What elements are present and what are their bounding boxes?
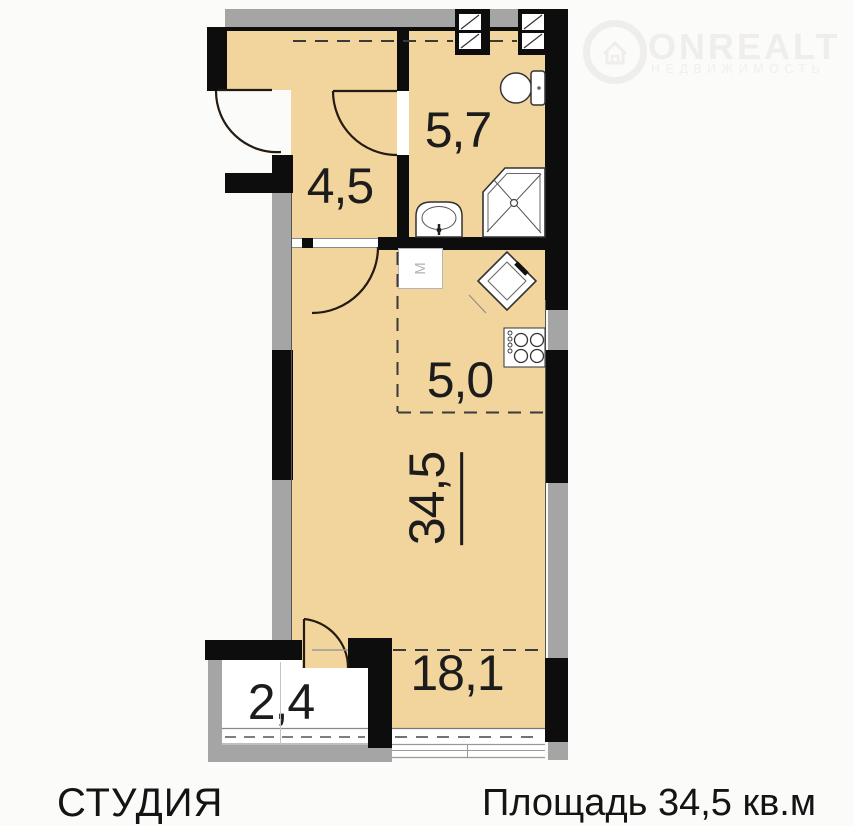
vent-grille-icon — [522, 33, 544, 49]
wall-left-segment — [272, 350, 293, 480]
vent-grille-icon — [459, 14, 481, 30]
bathroom-area-label: 5,7 — [408, 105, 508, 155]
wall-right-upper — [545, 9, 568, 310]
wall-entry-corner-h — [225, 173, 293, 193]
wall-doorway-stub — [302, 238, 313, 248]
vent-grille-icon — [459, 33, 481, 49]
wall-right-mid — [545, 350, 568, 483]
outer-wall-right-corner — [548, 742, 568, 760]
washing-machine-icon: M — [398, 248, 443, 289]
wall-balcony-pillar — [368, 666, 392, 748]
washing-machine-label: M — [412, 262, 429, 275]
wall-divider-upper — [397, 31, 409, 91]
outer-wall-right-a — [548, 310, 568, 350]
hallway-area-label: 4,5 — [290, 161, 390, 211]
entrance-door-swing-arc — [216, 90, 281, 152]
kitchen-area-label: 5,0 — [410, 355, 510, 405]
wall-top-line — [227, 27, 545, 31]
outer-wall-right-b — [548, 483, 568, 658]
main-window-band — [392, 728, 545, 758]
outer-wall-top — [225, 9, 568, 28]
wall-top-left — [207, 27, 227, 91]
balcony-wall-bottom — [208, 745, 370, 762]
vent-grille-icon — [522, 14, 544, 30]
wall-divider-lower — [397, 155, 409, 238]
wall-balcony-top — [205, 640, 302, 660]
wall-right-lower — [545, 658, 568, 742]
onrealt-logo: ONREALT НЕДВИЖИМОСТЬ — [575, 14, 845, 94]
logo-subtitle-text: НЕДВИЖИМОСТЬ — [651, 62, 825, 76]
hallway-floor — [227, 31, 397, 90]
studio-total-area-label: 34,5 — [398, 451, 463, 544]
house-logo-icon — [583, 20, 647, 84]
living-area-label: 18,1 — [402, 648, 512, 698]
wall-balcony-pillar-top — [348, 638, 392, 668]
studio-total-area-label-wrap: 34,5 — [372, 437, 490, 559]
window-pillar-base — [368, 748, 392, 762]
balcony-area-label: 2,4 — [226, 677, 336, 727]
balcony-doorway-floor — [302, 615, 348, 668]
floorplan-page: { "plan": { "rooms": { "bathroom": {"are… — [0, 0, 854, 804]
